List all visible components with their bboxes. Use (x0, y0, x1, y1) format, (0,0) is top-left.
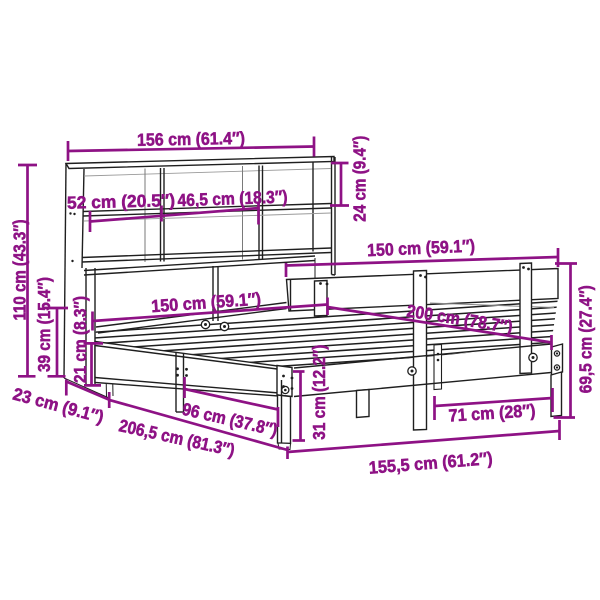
svg-text:24 cm (9.4″): 24 cm (9.4″) (349, 136, 369, 222)
svg-text:69,5 cm (27.4″): 69,5 cm (27.4″) (575, 285, 595, 393)
svg-text:39 cm (15.4″): 39 cm (15.4″) (34, 277, 54, 372)
svg-text:31 cm (12.2″): 31 cm (12.2″) (309, 345, 329, 440)
svg-text:21 cm (8.3″): 21 cm (8.3″) (70, 296, 90, 383)
svg-text:46,5 cm (18.3″): 46,5 cm (18.3″) (177, 186, 288, 210)
svg-text:156 cm (61.4″): 156 cm (61.4″) (137, 128, 245, 150)
svg-text:52 cm (20.5″): 52 cm (20.5″) (67, 190, 175, 213)
svg-text:110 cm (43.3″): 110 cm (43.3″) (9, 220, 29, 321)
